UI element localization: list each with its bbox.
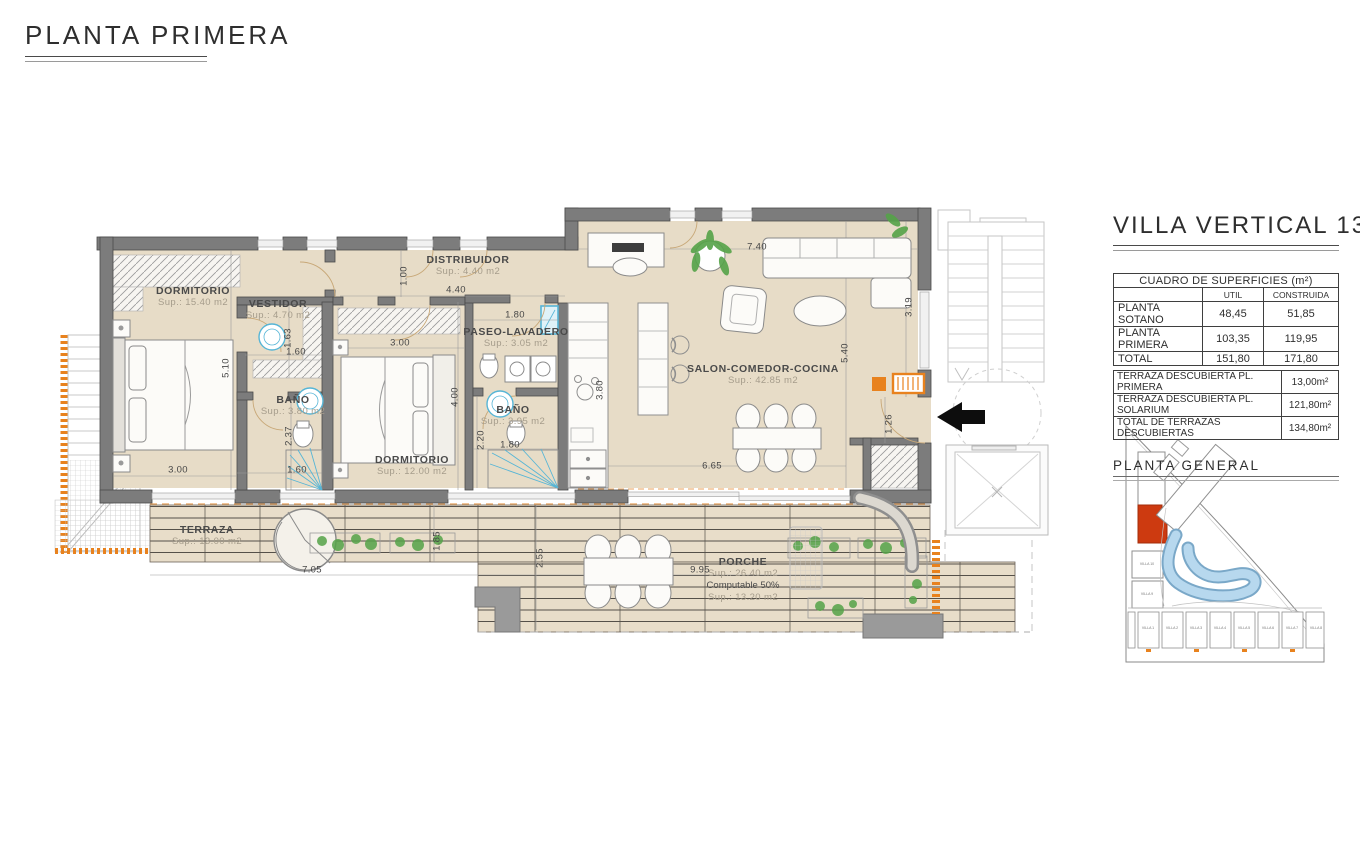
- dimension-label: 1.63: [283, 328, 294, 348]
- site-villa-label: VILLA 10: [1140, 562, 1154, 566]
- site-villa-label: VILLA 2: [1166, 626, 1178, 630]
- row-util: 151,80: [1203, 352, 1264, 366]
- dimension-label: 2.20: [476, 430, 487, 450]
- dimension-label: 1.26: [884, 414, 895, 434]
- row-label: PLANTA PRIMERA: [1114, 327, 1203, 352]
- dimension-label: 3.80: [595, 380, 606, 400]
- row-value: 121,80m²: [1282, 394, 1339, 417]
- room-label-salon-comedor-cocina: SALON-COMEDOR-COCINASup.: 42.85 m2: [687, 363, 839, 387]
- site-villa-label: VILLA 1: [1142, 626, 1154, 630]
- page-title: PLANTA PRIMERA: [25, 20, 290, 51]
- room-label-bano-2: BAÑOSup.: 3.95 m2: [481, 404, 545, 428]
- dimension-label: 2.55: [535, 548, 546, 568]
- site-villa-label: VILLA 6: [1262, 626, 1274, 630]
- dimension-label: 2.37: [284, 426, 295, 446]
- dimension-label: 9.95: [690, 565, 710, 576]
- row-label: TOTAL: [1114, 352, 1203, 366]
- villa-title-rule: [1113, 245, 1339, 251]
- site-villa-label: VILLA 5: [1238, 626, 1250, 630]
- room-label-dormitorio-2: DORMITORIOSup.: 12.00 m2: [375, 454, 449, 478]
- dimension-label: 4.00: [450, 387, 461, 407]
- info-panel: VILLA VERTICAL 13 CUADRO DE SUPERFICIES …: [1113, 212, 1339, 481]
- table-row: TOTAL DE TERRAZAS DESCUBIERTAS 134,80m²: [1114, 417, 1339, 440]
- row-label: PLANTA SOTANO: [1114, 302, 1203, 327]
- dimension-label: 5.40: [840, 343, 851, 363]
- site-plan-rule: [1113, 476, 1339, 481]
- dimension-label: 1.00: [399, 266, 410, 286]
- surfaces-col-empty: [1114, 288, 1203, 302]
- table-row: PLANTA PRIMERA 103,35 119,95: [1114, 327, 1339, 352]
- room-label-vestidor: VESTIDORSup.: 4.70 m2: [246, 298, 310, 322]
- terraces-table: TERRAZA DESCUBIERTA PL. PRIMERA 13,00m² …: [1113, 370, 1339, 440]
- surfaces-col-util: UTIL: [1203, 288, 1264, 302]
- room-label-terraza: TERRAZASup.: 13.00 m2: [172, 524, 242, 548]
- surfaces-col-construida: CONSTRUIDA: [1264, 288, 1339, 302]
- title-rule: [25, 56, 207, 62]
- row-label: TERRAZA DESCUBIERTA PL. SOLARIUM: [1114, 394, 1282, 417]
- site-villa-label: VILLA 9: [1141, 592, 1153, 596]
- site-villa-label: VILLA 3: [1190, 626, 1202, 630]
- room-label-dormitorio-1: DORMITORIOSup.: 15.40 m2: [156, 285, 230, 309]
- dimension-label: 1.60: [286, 347, 306, 358]
- table-row: TOTAL 151,80 171,80: [1114, 352, 1339, 366]
- row-util: 103,35: [1203, 327, 1264, 352]
- row-util: 48,45: [1203, 302, 1264, 327]
- row-construida: 119,95: [1264, 327, 1339, 352]
- row-construida: 171,80: [1264, 352, 1339, 366]
- site-plan-label: PLANTA GENERAL: [1113, 458, 1339, 473]
- row-value: 134,80m²: [1282, 417, 1339, 440]
- dimension-label: 3.19: [904, 297, 915, 317]
- table-row: PLANTA SOTANO 48,45 51,85: [1114, 302, 1339, 327]
- dimension-label: 3.00: [168, 465, 188, 476]
- row-label: TERRAZA DESCUBIERTA PL. PRIMERA: [1114, 371, 1282, 394]
- row-value: 13,00m²: [1282, 371, 1339, 394]
- surfaces-table-title: CUADRO DE SUPERFICIES (m²): [1114, 274, 1339, 288]
- room-label-porche: PORCHESup.: 26.40 m2Computable 50%Sup.: …: [707, 556, 780, 604]
- site-villa-label: VILLA 8: [1310, 626, 1322, 630]
- dimension-label: 7.40: [747, 242, 767, 253]
- surfaces-table: CUADRO DE SUPERFICIES (m²) UTIL CONSTRUI…: [1113, 273, 1339, 366]
- villa-title: VILLA VERTICAL 13: [1113, 212, 1339, 240]
- room-label-bano-1: BAÑOSup.: 3.80 m2: [261, 394, 325, 418]
- row-construida: 51,85: [1264, 302, 1339, 327]
- table-row: TERRAZA DESCUBIERTA PL. PRIMERA 13,00m²: [1114, 371, 1339, 394]
- dimension-label: 4.40: [446, 285, 466, 296]
- dimension-label: 6.65: [702, 461, 722, 472]
- dimension-label: 1.80: [500, 440, 520, 451]
- dimension-label: 3.00: [390, 338, 410, 349]
- dimension-label: 1.80: [505, 310, 525, 321]
- dimension-label: 5.10: [221, 358, 232, 378]
- dimension-label: 1.85: [432, 531, 443, 551]
- room-label-distribuidor: DISTRIBUIDORSup.: 4.40 m2: [426, 254, 509, 278]
- site-villa-label: VILLA 7: [1286, 626, 1298, 630]
- floorplan-page: { "page": { "title": "PLANTA PRIMERA" },…: [0, 0, 1360, 850]
- room-label-paseo-lavadero: PASEO-LAVADEROSup.: 3.05 m2: [463, 326, 568, 350]
- dimension-label: 1.60: [287, 465, 307, 476]
- site-villa-label: VILLA 4: [1214, 626, 1226, 630]
- dimension-label: 7.05: [302, 565, 322, 576]
- table-row: TERRAZA DESCUBIERTA PL. SOLARIUM 121,80m…: [1114, 394, 1339, 417]
- row-label: TOTAL DE TERRAZAS DESCUBIERTAS: [1114, 417, 1282, 440]
